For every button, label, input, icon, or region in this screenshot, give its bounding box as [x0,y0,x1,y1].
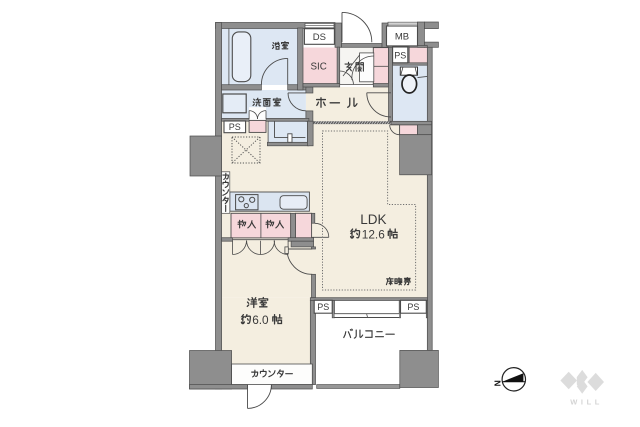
svg-text:DS: DS [313,32,326,43]
svg-text:PS: PS [394,50,406,60]
svg-text:LDK: LDK [360,212,386,227]
svg-text:6.0: 6.0 [252,313,269,327]
svg-text:12.6: 12.6 [362,227,385,241]
svg-text:SIC: SIC [311,61,327,72]
svg-text:PS: PS [407,302,419,312]
svg-text:MB: MB [395,32,409,43]
svg-text:PS: PS [229,122,241,132]
svg-text:PS: PS [317,302,329,312]
svg-text:N: N [492,380,502,386]
svg-text:WILL: WILL [570,397,603,406]
